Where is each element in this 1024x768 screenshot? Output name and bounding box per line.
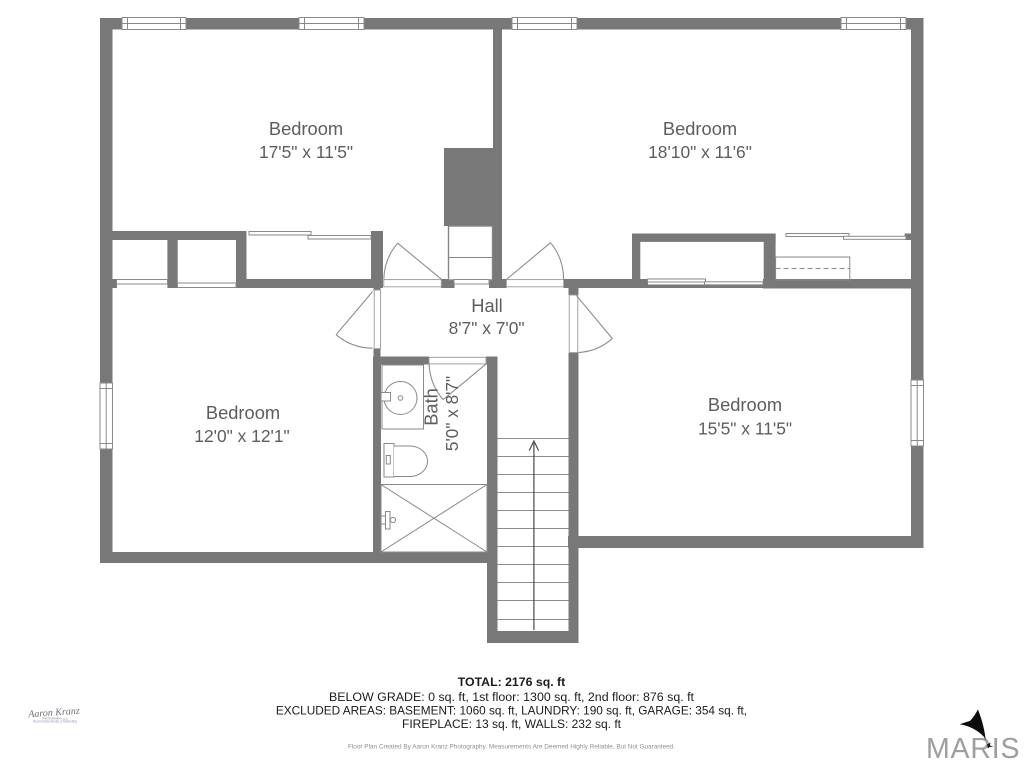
svg-text:5'0" x 8'7": 5'0" x 8'7" (442, 376, 462, 451)
svg-text:Bath: Bath (421, 388, 442, 426)
svg-text:8'7" x 7'0": 8'7" x 7'0" (449, 318, 525, 338)
svg-text:Real Estate Media & Marketing: Real Estate Media & Marketing (33, 720, 77, 724)
svg-text:Bedroom: Bedroom (663, 118, 737, 139)
svg-text:MARIS: MARIS (926, 733, 1020, 765)
svg-text:Bedroom: Bedroom (206, 402, 280, 423)
svg-text:18'10" x 11'6": 18'10" x 11'6" (648, 142, 752, 162)
svg-text:Floor Plan Created By Aaron Kr: Floor Plan Created By Aaron Kranz Photog… (348, 744, 675, 751)
svg-text:Bedroom: Bedroom (269, 118, 343, 139)
svg-text:15'5" x 11'5": 15'5" x 11'5" (698, 419, 792, 439)
svg-text:BELOW GRADE: 0 sq. ft, 1st flo: BELOW GRADE: 0 sq. ft, 1st floor: 1300 s… (329, 690, 695, 704)
svg-text:17'5" x 11'5": 17'5" x 11'5" (259, 142, 353, 162)
svg-text:TOTAL: 2176 sq. ft: TOTAL: 2176 sq. ft (458, 675, 566, 689)
svg-text:Bedroom: Bedroom (708, 394, 782, 415)
svg-text:EXCLUDED AREAS: BASEMENT: 1060: EXCLUDED AREAS: BASEMENT: 1060 sq. ft, L… (276, 704, 747, 718)
svg-text:FIREPLACE: 13 sq. ft, WALLS: 2: FIREPLACE: 13 sq. ft, WALLS: 232 sq. ft (402, 717, 622, 731)
svg-text:Hall: Hall (471, 295, 503, 316)
svg-text:12'0" x 12'1": 12'0" x 12'1" (194, 426, 289, 446)
